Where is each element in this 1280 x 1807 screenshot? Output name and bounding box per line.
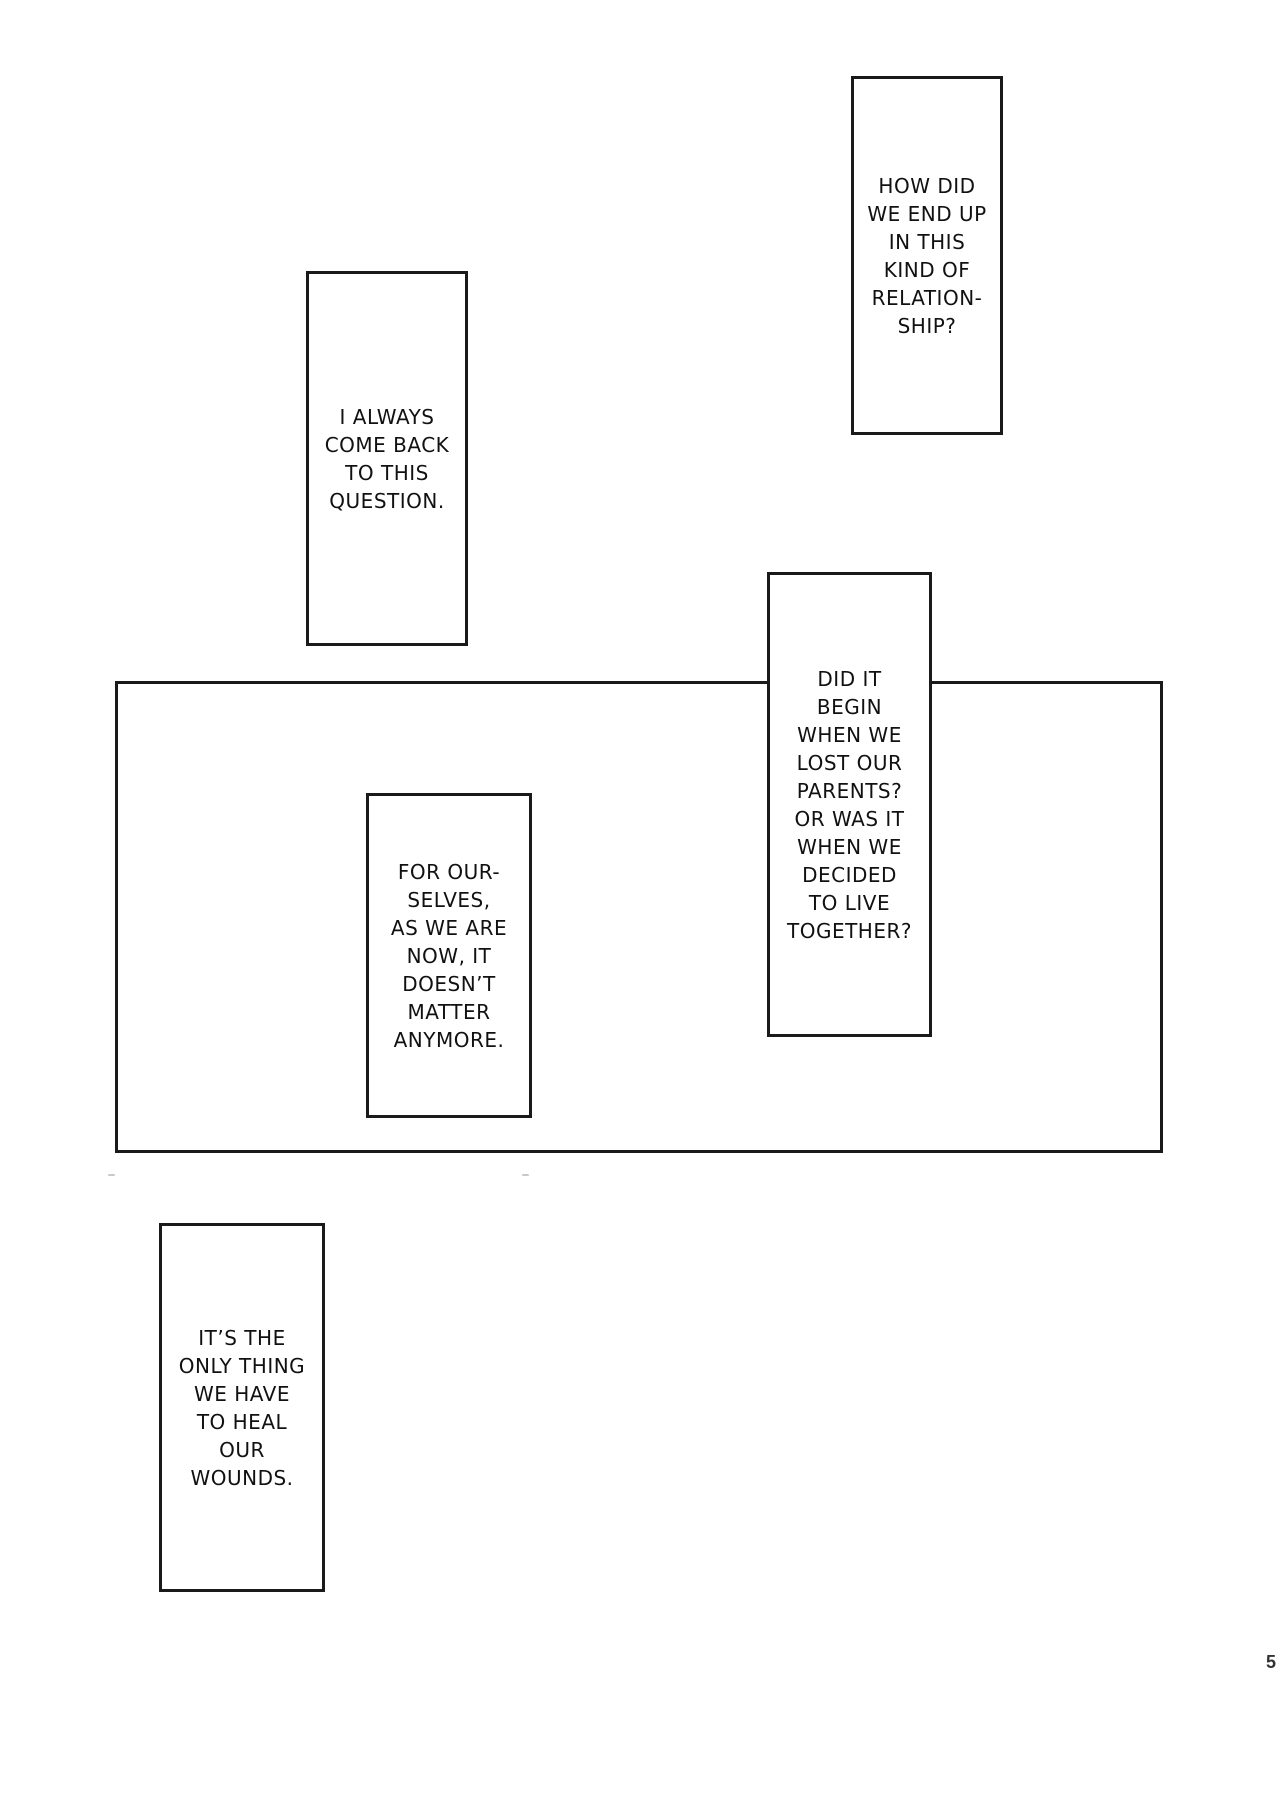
dust-speck: [522, 1174, 529, 1176]
caption-box-i-always: I ALWAYS COME BACK TO THIS QUESTION.: [306, 271, 468, 646]
caption-text-its-the-only: IT’S THE ONLY THING WE HAVE TO HEAL OUR …: [179, 1324, 305, 1492]
caption-text-did-it-begin: DID IT BEGIN WHEN WE LOST OUR PARENTS? O…: [787, 665, 912, 945]
page-number: 5: [1266, 1652, 1276, 1673]
dust-speck: [108, 1174, 115, 1176]
caption-box-its-the-only: IT’S THE ONLY THING WE HAVE TO HEAL OUR …: [159, 1223, 325, 1592]
caption-box-did-it-begin: DID IT BEGIN WHEN WE LOST OUR PARENTS? O…: [767, 572, 932, 1037]
story-panel-frame: [115, 681, 1163, 1153]
caption-text-how-did: HOW DID WE END UP IN THIS KIND OF RELATI…: [867, 172, 986, 340]
caption-text-for-ourselves: FOR OUR- SELVES, AS WE ARE NOW, IT DOESN…: [391, 858, 507, 1054]
caption-box-for-ourselves: FOR OUR- SELVES, AS WE ARE NOW, IT DOESN…: [366, 793, 532, 1118]
manga-page: HOW DID WE END UP IN THIS KIND OF RELATI…: [0, 0, 1280, 1807]
caption-text-i-always: I ALWAYS COME BACK TO THIS QUESTION.: [325, 403, 450, 515]
caption-box-how-did: HOW DID WE END UP IN THIS KIND OF RELATI…: [851, 76, 1003, 435]
